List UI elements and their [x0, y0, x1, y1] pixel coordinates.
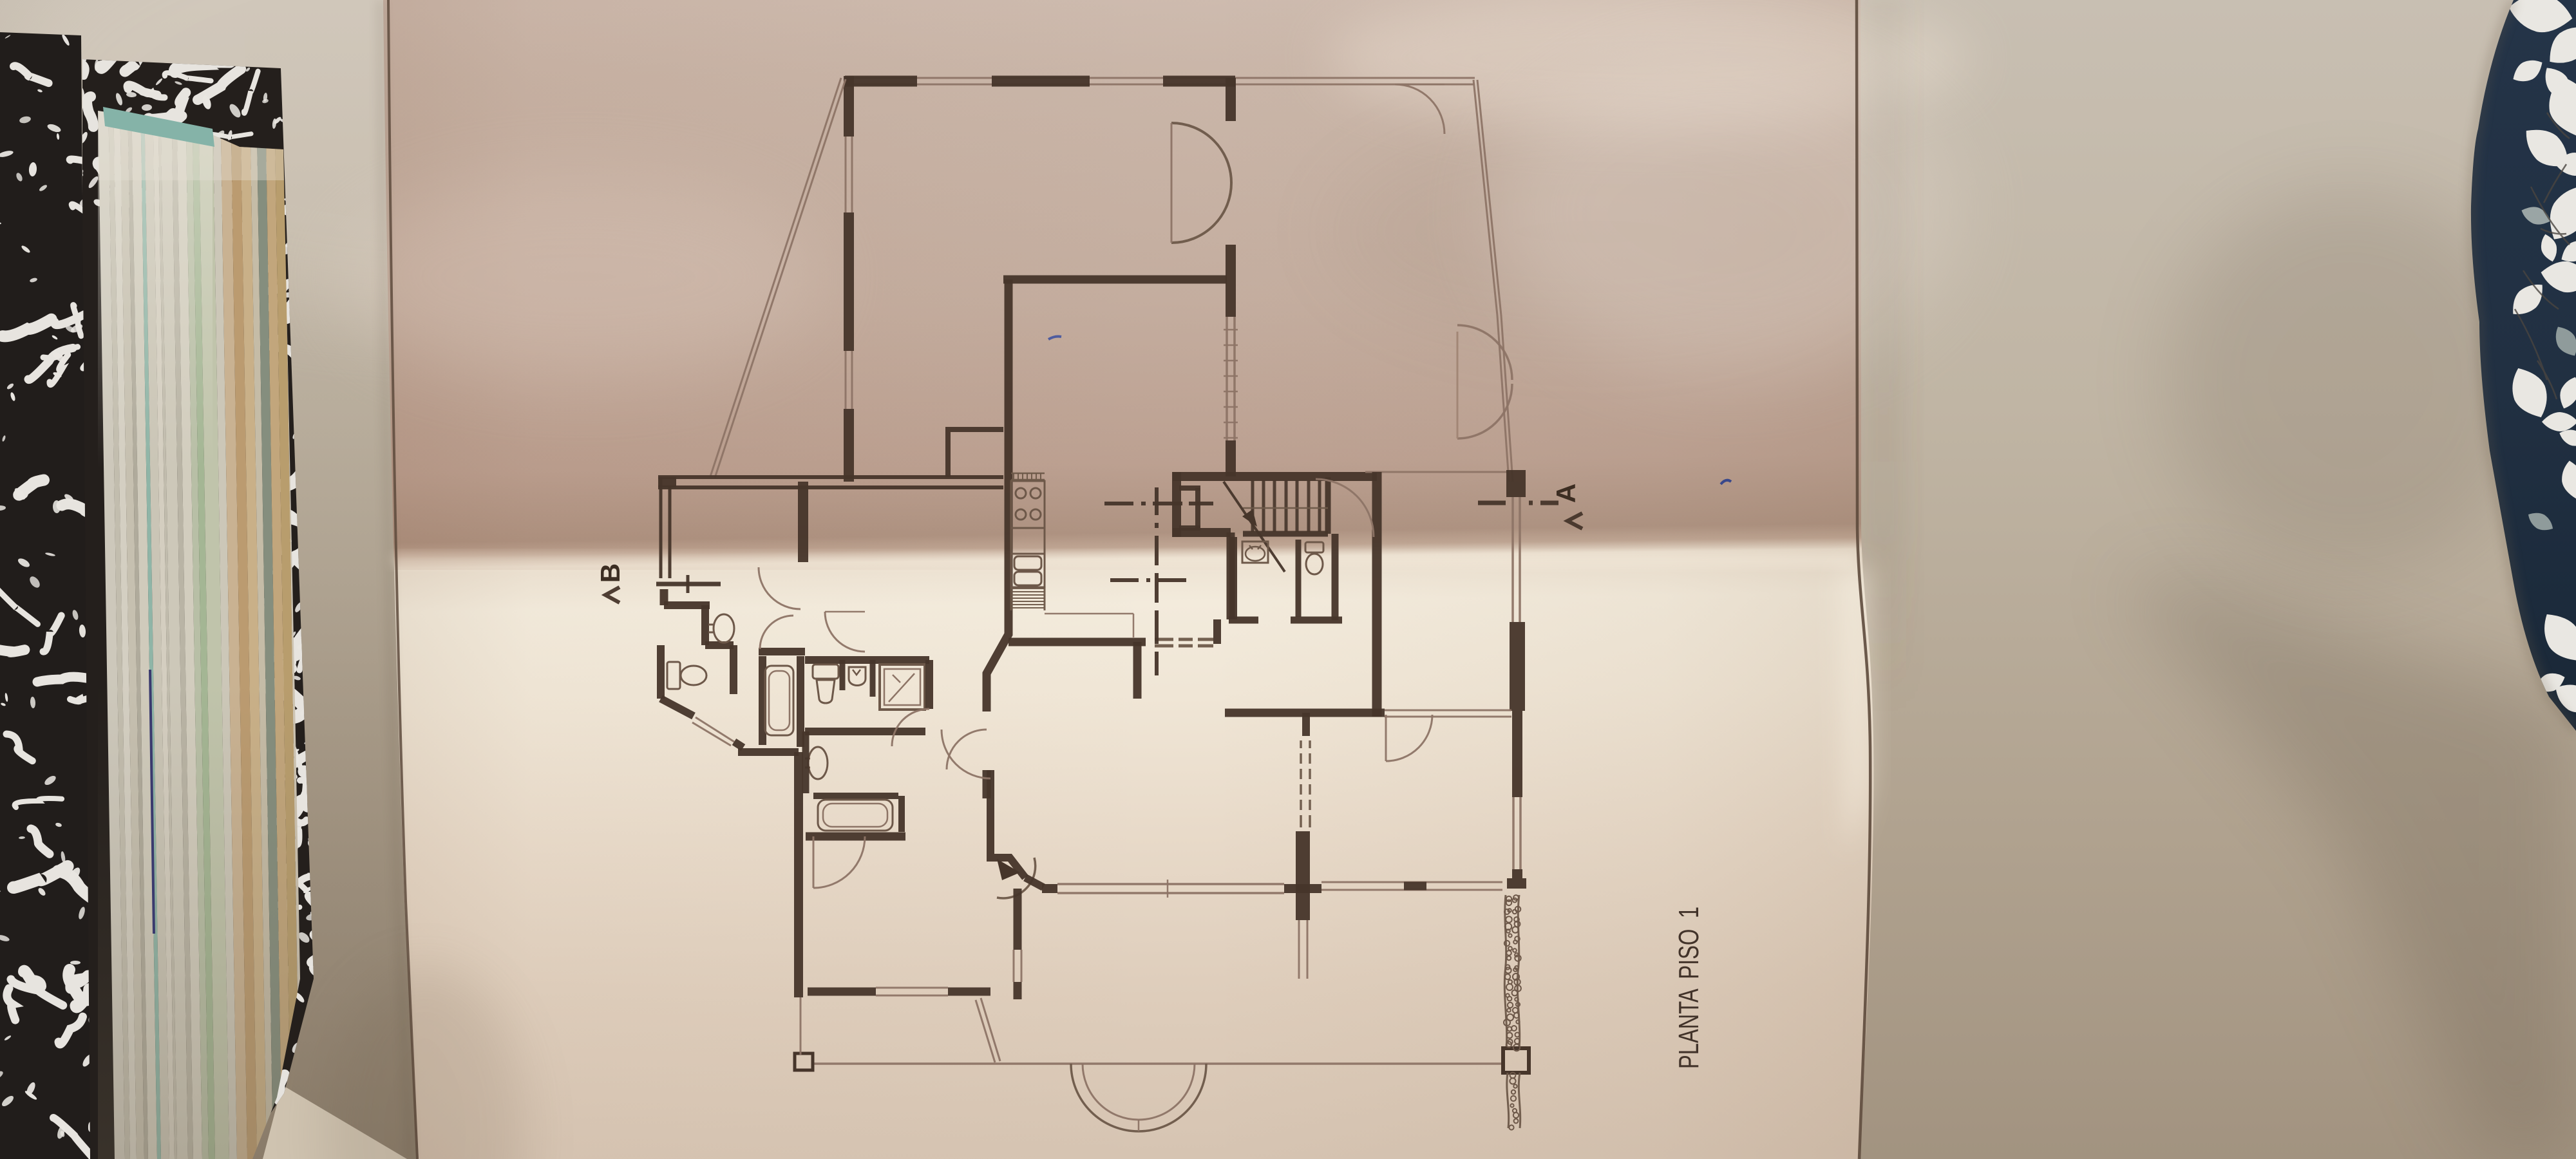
svg-text:B: B [595, 563, 625, 583]
svg-text:A: A [1551, 484, 1581, 503]
svg-text:PLANTA PISO 1: PLANTA PISO 1 [1673, 907, 1705, 1069]
